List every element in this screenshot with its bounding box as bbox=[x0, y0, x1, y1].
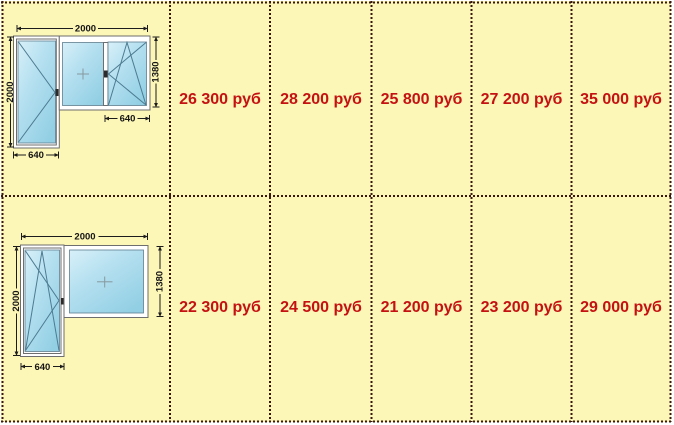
svg-text:640: 640 bbox=[28, 150, 44, 161]
svg-text:640: 640 bbox=[120, 114, 136, 125]
svg-text:2000: 2000 bbox=[74, 232, 95, 243]
svg-text:2000: 2000 bbox=[11, 290, 22, 311]
svg-text:2000: 2000 bbox=[5, 81, 16, 102]
svg-text:640: 640 bbox=[34, 362, 50, 373]
svg-text:1380: 1380 bbox=[155, 271, 166, 292]
svg-text:2000: 2000 bbox=[75, 24, 96, 35]
svg-text:1380: 1380 bbox=[151, 61, 162, 82]
